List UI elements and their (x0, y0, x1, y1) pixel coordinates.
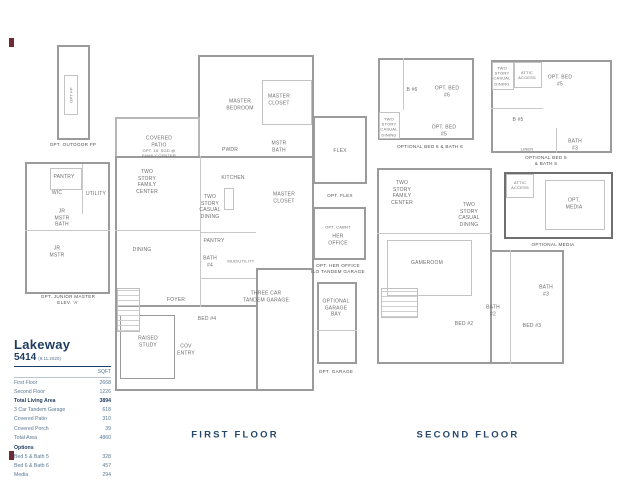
second-floor-stairs (381, 288, 418, 318)
caption-opt-garage: OPT. GARAGE (319, 369, 353, 375)
room-label-bed3: BED #3 (523, 323, 541, 330)
room-label-raised-study: RAISED STUDY (138, 336, 158, 349)
legend-row-garage: 3 Car Tandem Garage 618 (14, 406, 111, 415)
room-label-bed4: BED #4 (198, 316, 216, 323)
plan-garage-bay-outline (317, 282, 357, 364)
legend-value: 3894 (99, 398, 111, 404)
room-label-foyer: FOYER (167, 297, 185, 304)
legend-label: Media (14, 472, 28, 478)
first-floor-title: FIRST FLOOR (191, 430, 279, 441)
legend-label: Total Living Area (14, 398, 56, 404)
room-label-jm-pantry: PANTRY (53, 174, 74, 181)
legend-value: 328 (102, 454, 111, 460)
caption-optional-bed6: OPTIONAL BED 6 & BATH 6 (397, 144, 463, 150)
room-label-bed5-bath3: BATH #3 (568, 139, 582, 152)
legend-value: 310 (102, 416, 111, 422)
room-label-bath3: BATH #3 (539, 285, 553, 298)
room-label-pantry: PANTRY (203, 238, 224, 245)
legend-options-header: Options (14, 442, 111, 452)
room-label-jm-master: JR MSTR (50, 246, 65, 259)
room-label-jm-utility: UTILITY (86, 191, 106, 198)
legend-label: Bed 6 & Bath 6 (14, 463, 49, 469)
room-label-her-office: HER OFFICE (328, 234, 348, 247)
room-label-sf-family-center: TWO STORY FAMILY CENTER (391, 180, 413, 206)
room-label-family-center: TWO STORY FAMILY CENTER (136, 169, 158, 195)
room-label-kitchen: KITCHEN (221, 175, 244, 182)
bed5-interior-wall (556, 128, 557, 153)
first-floor-interior-wall (115, 230, 200, 231)
first-floor-kitchen-island (224, 188, 234, 210)
room-label-garage: THREE CAR TANDEM GARAGE (243, 291, 289, 304)
room-label-jm-bath: JR MSTR BATH (55, 208, 70, 228)
room-label-opt-bed5: OPT. BED #5 (548, 75, 572, 88)
room-label-sf-casual-dining: TWO STORY CASUAL DINING (458, 202, 479, 228)
caption-optional-media: OPTIONAL MEDIA (531, 242, 574, 248)
legend-row-total-living: Total Living Area 3894 (14, 396, 111, 405)
room-label-master-closet-top: MASTER CLOSET (268, 94, 290, 107)
legend-unit-header: SQFT (14, 368, 111, 378)
legend-label: Bed 5 & Bath 5 (14, 454, 49, 460)
legend-row-total-area: Total Area 4860 (14, 433, 111, 442)
legend-label: First Floor (14, 380, 37, 386)
caption-her-office: OPT. HER OFFICE ILO TANDEM GARAGE (311, 263, 365, 275)
room-label-bath2: BATH #2 (486, 305, 500, 318)
legend-value: 618 (102, 407, 111, 413)
room-label-bed5-attic: ATTIC ACCESS (518, 70, 536, 80)
room-label-opt-cabnt: OPT. CABNT (325, 224, 351, 229)
legend-value: 4860 (99, 435, 111, 441)
plan-legend: Lakeway 5414(9.11.2020) SQFT First Floor… (14, 337, 111, 480)
legend-label: 3 Car Tandem Garage (14, 407, 65, 413)
room-label-gameroom: GAMEROOM (411, 260, 443, 267)
registration-mark-top (9, 38, 14, 47)
junior-master-wall (82, 164, 83, 214)
legend-row-opt-bed6: Bed 6 & Bath 6 457 (14, 462, 111, 471)
room-label-mstr-bath: MSTR BATH (272, 141, 287, 154)
room-label-bath4: BATH #4 (203, 256, 217, 269)
plan-date: (9.11.2020) (38, 356, 61, 361)
junior-master-wall (25, 230, 110, 231)
caption-optional-bed5: OPTIONAL BED 5 & BATH 5 (525, 155, 567, 167)
room-label-linen: LINEN (521, 146, 534, 151)
plan-number: 5414 (14, 352, 36, 363)
legend-divider (14, 366, 111, 367)
legend-value: 294 (102, 472, 111, 478)
garage-bay-door-line (317, 330, 357, 331)
legend-label: Total Area (14, 435, 37, 441)
first-floor-stairs (117, 288, 140, 332)
legend-row-opt-media: Media 294 (14, 471, 111, 480)
first-floor-interior-wall (200, 278, 256, 279)
legend-row-covered-patio: Covered Patio 310 (14, 415, 111, 424)
caption-opt-outdoor-fp: OPT. OUTDOOR FP (50, 142, 97, 148)
room-label-opt-media: OPT. MEDIA (566, 198, 583, 211)
room-label-flex: FLEX (333, 148, 346, 155)
room-label-b6: B #6 (406, 87, 417, 94)
legend-plan-number: 5414(9.11.2020) (14, 352, 111, 363)
second-floor-title: SECOND FLOOR (417, 430, 520, 441)
legend-label: Second Floor (14, 389, 45, 395)
legend-value: 2668 (99, 380, 111, 386)
room-label-mud-utility: MUD/UTILITY (227, 258, 254, 263)
room-label-media-attic: ATTIC ACCESS (511, 180, 529, 190)
room-label-opt-bed6: OPT. BED #6 (435, 86, 459, 99)
room-label-master-closet-mid: MASTER CLOSET (273, 192, 295, 205)
room-label-garage-bay: OPTIONAL GARAGE BAY (323, 298, 350, 318)
room-label-covered-patio: COVERED PATIO (146, 136, 172, 149)
room-label-opt-fp: OPT FP (68, 87, 73, 103)
room-label-pwdr: PWDR (222, 147, 238, 154)
second-floor-interior-wall (510, 250, 511, 364)
first-floor-interior-wall (200, 232, 256, 233)
bed6-interior-wall (403, 58, 404, 110)
room-label-dining: DINING (133, 247, 152, 254)
legend-value: 1226 (99, 389, 111, 395)
legend-label: Covered Patio (14, 416, 47, 422)
room-label-bed6-casual-dining: TWO STORY CASUAL DINING (380, 117, 397, 138)
caption-opt-flex: OPT. FLEX (327, 193, 353, 199)
caption-junior-master: OPT. JUNIOR MASTER ELEV. 'A' (41, 294, 95, 306)
room-label-cov-entry: COV ENTRY (177, 344, 195, 357)
second-floor-interior-wall (377, 233, 492, 234)
bed5-interior-wall (491, 108, 543, 109)
legend-row-covered-porch: Covered Porch 39 (14, 424, 111, 433)
legend-value: 39 (105, 426, 111, 432)
room-label-opt-bed5-in-bed6: OPT. BED #5 (432, 125, 456, 138)
legend-row-second-floor: Second Floor 1226 (14, 387, 111, 396)
room-label-b5: B #5 (512, 117, 523, 124)
legend-row-first-floor: First Floor 2668 (14, 378, 111, 387)
legend-value: 457 (102, 463, 111, 469)
floorplan-sheet: OPT FP OPT. OUTDOOR FP PANTRY WIC UTILIT… (0, 0, 621, 480)
legend-label: Covered Porch (14, 426, 49, 432)
legend-row-opt-bed5: Bed 5 & Bath 5 328 (14, 452, 111, 461)
second-floor-bedwing-outline (490, 250, 564, 364)
room-label-bed5-casual-dining: TWO STORY CASUAL DINING (493, 66, 510, 87)
room-label-bed2: BED #2 (455, 321, 473, 328)
room-label-jm-wic: WIC (52, 190, 62, 197)
room-label-master-bedroom: MASTER BEDROOM (226, 99, 253, 112)
room-label-opt-sgd: OPT. 16' SGD @ FAMILY CENTER (142, 148, 176, 158)
room-label-casual-dining: TWO STORY CASUAL DINING (199, 194, 220, 220)
legend-title: Lakeway (14, 337, 111, 352)
first-floor-garage-outline (256, 268, 314, 391)
